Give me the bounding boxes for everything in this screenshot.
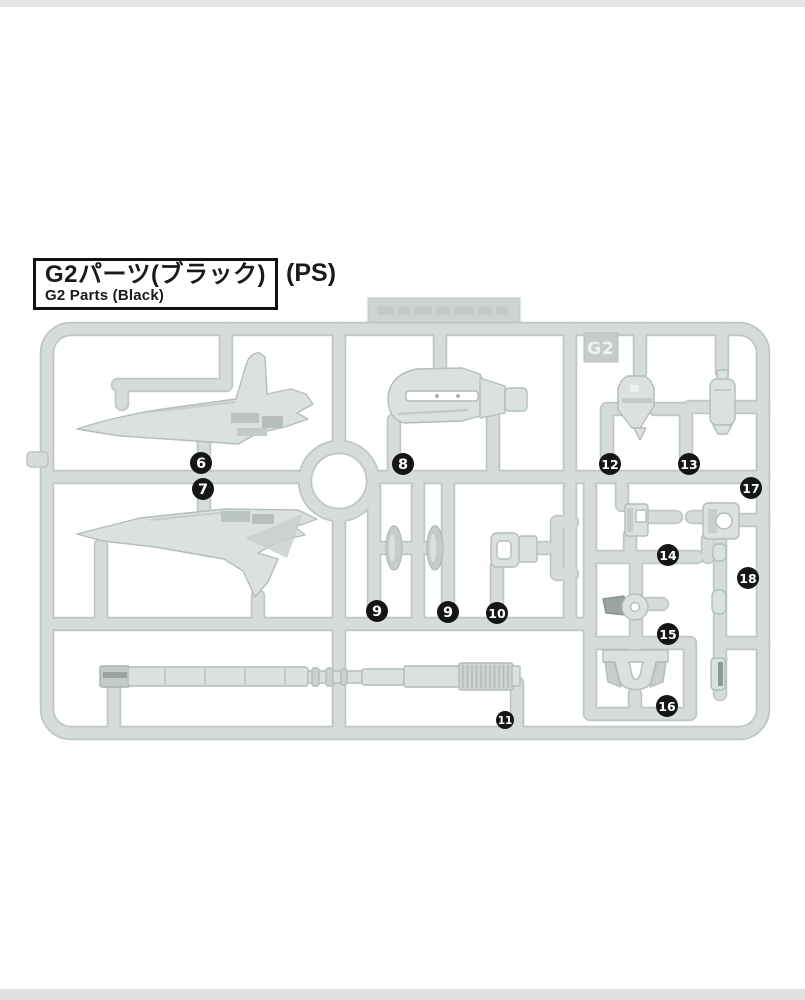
part-yoke-16 [603, 650, 668, 690]
manual-page: G2パーツ(ブラック) G2 Parts (Black) (PS) [0, 0, 805, 1000]
svg-text:14: 14 [659, 548, 677, 563]
part-number-badge-10: 10 [486, 602, 508, 624]
part-beam-lance [100, 663, 520, 690]
svg-text:6: 6 [196, 456, 206, 472]
part-number-badge-7: 7 [192, 478, 214, 500]
svg-text:7: 7 [198, 482, 208, 498]
part-number-badge-18: 18 [737, 567, 759, 589]
svg-text:13: 13 [680, 457, 697, 472]
part-number-badge-13: 13 [678, 453, 700, 475]
part-small-joint [491, 533, 537, 567]
part-number-badge-15: 15 [657, 623, 679, 645]
runner-code-tag: G2 [584, 333, 618, 362]
part-wing-lower [77, 509, 317, 597]
part-tank [710, 370, 735, 434]
part-number-badge-8: 8 [392, 453, 414, 475]
molded-tab [368, 298, 520, 323]
svg-text:16: 16 [658, 699, 676, 714]
part-number-badge-6: 6 [190, 452, 212, 474]
svg-text:17: 17 [742, 481, 759, 496]
part-number-badge-9: 9 [437, 601, 459, 623]
svg-text:11: 11 [498, 715, 513, 727]
part-thruster-disc-right [427, 526, 443, 570]
part-engine-pod [388, 368, 527, 423]
part-number-badge-9: 9 [366, 600, 388, 622]
svg-text:18: 18 [739, 571, 756, 586]
part-shield-pod [618, 376, 654, 440]
part-number-badge-17: 17 [740, 477, 762, 499]
part-thruster-disc-left [386, 526, 402, 570]
svg-text:9: 9 [372, 604, 382, 620]
runner-code-text: G2 [587, 339, 615, 359]
svg-text:15: 15 [659, 627, 676, 642]
runner-diagram: G2 67899101112131415161718 [0, 0, 805, 1000]
part-number-badge-14: 14 [657, 544, 679, 566]
svg-text:8: 8 [398, 457, 408, 473]
svg-text:10: 10 [488, 606, 506, 621]
svg-text:9: 9 [443, 605, 453, 621]
part-number-badge-11: 11 [496, 711, 514, 729]
side-gate-nub [27, 452, 48, 467]
part-wing-upper [77, 353, 313, 444]
part-number-badge-12: 12 [599, 453, 621, 475]
svg-text:12: 12 [601, 457, 618, 472]
part-frame-square-17 [703, 503, 739, 539]
part-bracket-14 [625, 504, 648, 536]
part-number-badge-16: 16 [656, 695, 678, 717]
part-rotor-15 [603, 594, 648, 620]
